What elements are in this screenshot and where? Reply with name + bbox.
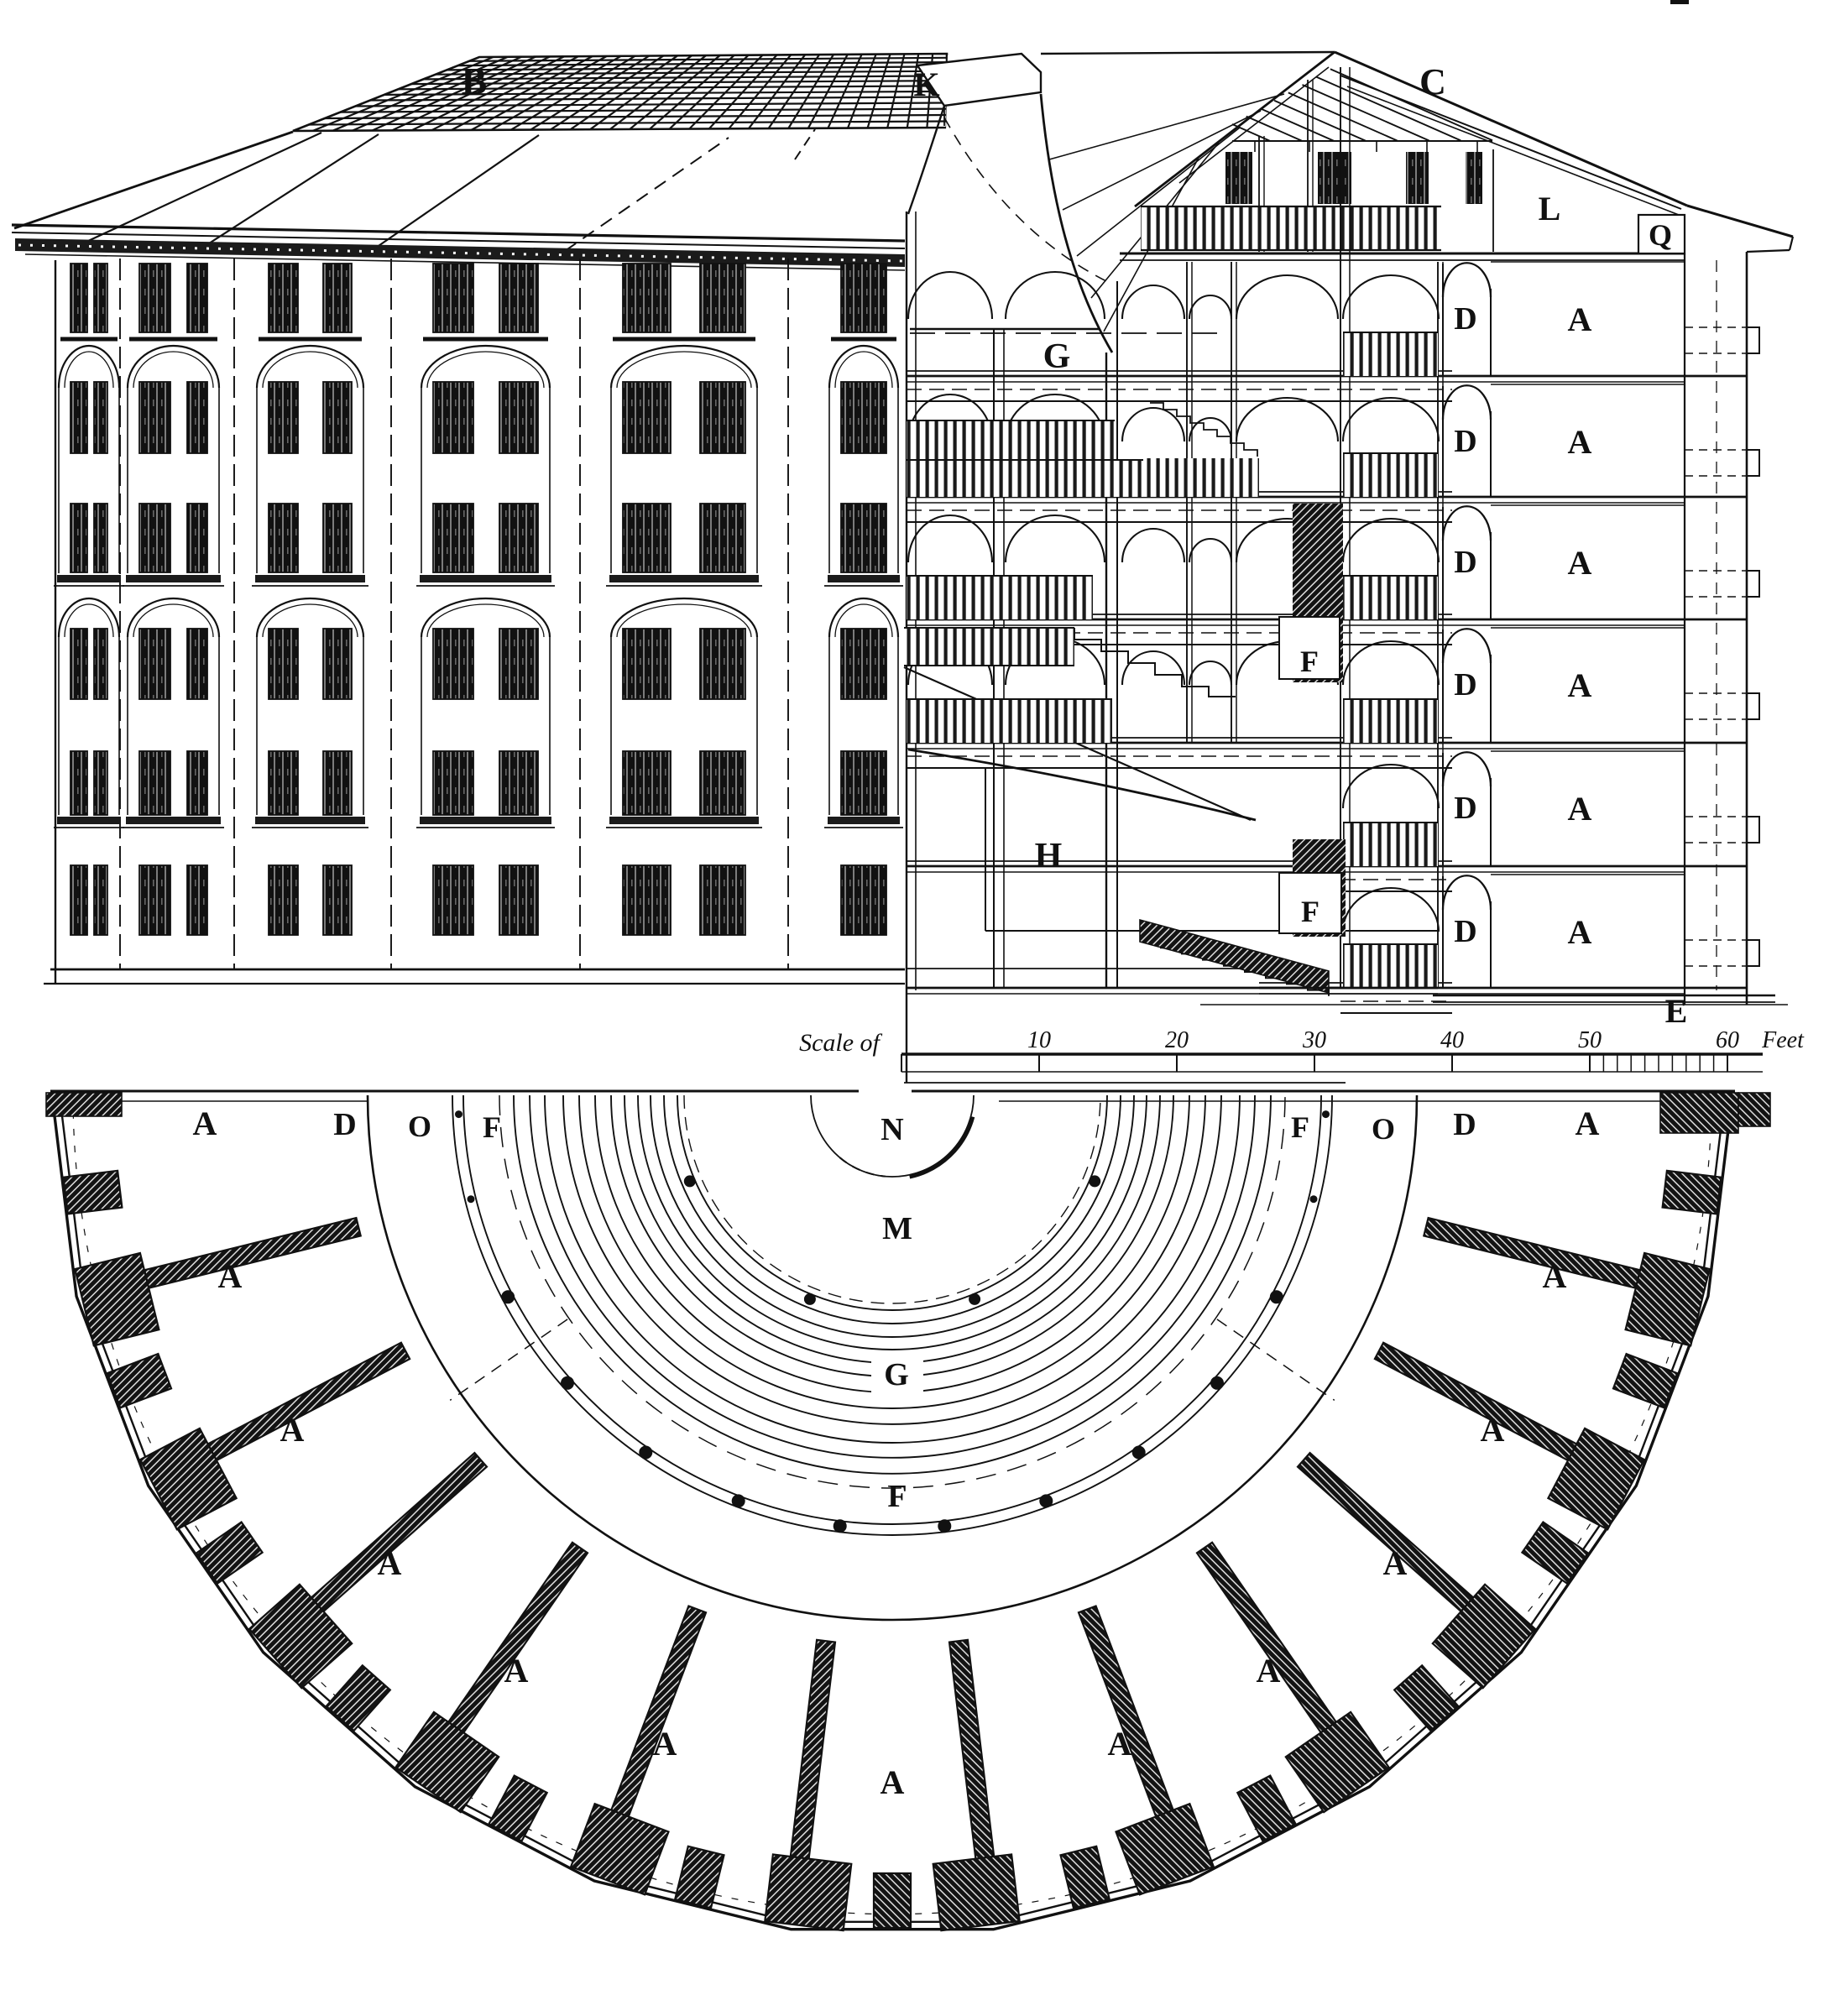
svg-text:K: K bbox=[913, 65, 939, 103]
svg-text:A: A bbox=[218, 1257, 243, 1295]
svg-text:D: D bbox=[1454, 545, 1476, 580]
svg-text:A: A bbox=[1568, 544, 1592, 582]
svg-text:E: E bbox=[1665, 992, 1688, 1030]
svg-text:30: 30 bbox=[1302, 1027, 1326, 1053]
svg-text:A: A bbox=[1576, 1105, 1600, 1142]
svg-text:A: A bbox=[1568, 666, 1592, 704]
svg-text:A: A bbox=[1383, 1544, 1408, 1582]
svg-text:A: A bbox=[1481, 1411, 1505, 1449]
svg-text:F: F bbox=[1291, 1110, 1309, 1144]
svg-text:Feet: Feet bbox=[1761, 1027, 1805, 1053]
svg-text:F: F bbox=[887, 1479, 907, 1514]
svg-text:A: A bbox=[1568, 300, 1592, 338]
svg-text:Q: Q bbox=[1649, 218, 1672, 252]
svg-text:D: D bbox=[333, 1107, 356, 1142]
svg-text:40: 40 bbox=[1440, 1027, 1464, 1053]
svg-text:L: L bbox=[1539, 190, 1561, 227]
svg-text:A: A bbox=[653, 1725, 677, 1763]
svg-text:B: B bbox=[462, 60, 488, 102]
svg-text:60: 60 bbox=[1716, 1027, 1739, 1053]
svg-text:D: D bbox=[1454, 791, 1476, 826]
svg-text:A: A bbox=[378, 1544, 402, 1582]
svg-text:50: 50 bbox=[1578, 1027, 1602, 1053]
svg-text:Scale of: Scale of bbox=[799, 1029, 882, 1057]
svg-text:A: A bbox=[1543, 1257, 1567, 1295]
svg-text:A: A bbox=[1568, 913, 1592, 951]
svg-text:G: G bbox=[1043, 337, 1071, 376]
svg-text:H: H bbox=[1035, 837, 1063, 875]
svg-text:F: F bbox=[1300, 645, 1319, 678]
svg-text:20: 20 bbox=[1165, 1027, 1189, 1053]
svg-text:F: F bbox=[483, 1110, 501, 1144]
svg-text:F: F bbox=[1301, 895, 1319, 928]
svg-text:10: 10 bbox=[1027, 1027, 1051, 1053]
svg-text:O: O bbox=[1372, 1112, 1395, 1146]
svg-text:A: A bbox=[280, 1411, 305, 1449]
svg-text:A: A bbox=[1568, 423, 1592, 461]
svg-text:C: C bbox=[1419, 61, 1446, 102]
svg-text:G: G bbox=[884, 1357, 909, 1392]
svg-text:D: D bbox=[1454, 667, 1476, 702]
svg-text:M: M bbox=[882, 1211, 912, 1246]
svg-text:O: O bbox=[408, 1110, 431, 1143]
svg-text:D: D bbox=[1454, 301, 1476, 337]
svg-text:A: A bbox=[881, 1763, 905, 1801]
svg-text:N: N bbox=[881, 1112, 903, 1147]
svg-text:A: A bbox=[504, 1652, 529, 1690]
svg-text:A: A bbox=[1568, 790, 1592, 828]
svg-text:A: A bbox=[193, 1105, 217, 1142]
svg-text:D: D bbox=[1454, 914, 1476, 949]
svg-text:A: A bbox=[1108, 1725, 1132, 1763]
svg-text:D: D bbox=[1454, 424, 1476, 459]
svg-text:A: A bbox=[1257, 1652, 1281, 1690]
svg-text:D: D bbox=[1453, 1107, 1476, 1142]
